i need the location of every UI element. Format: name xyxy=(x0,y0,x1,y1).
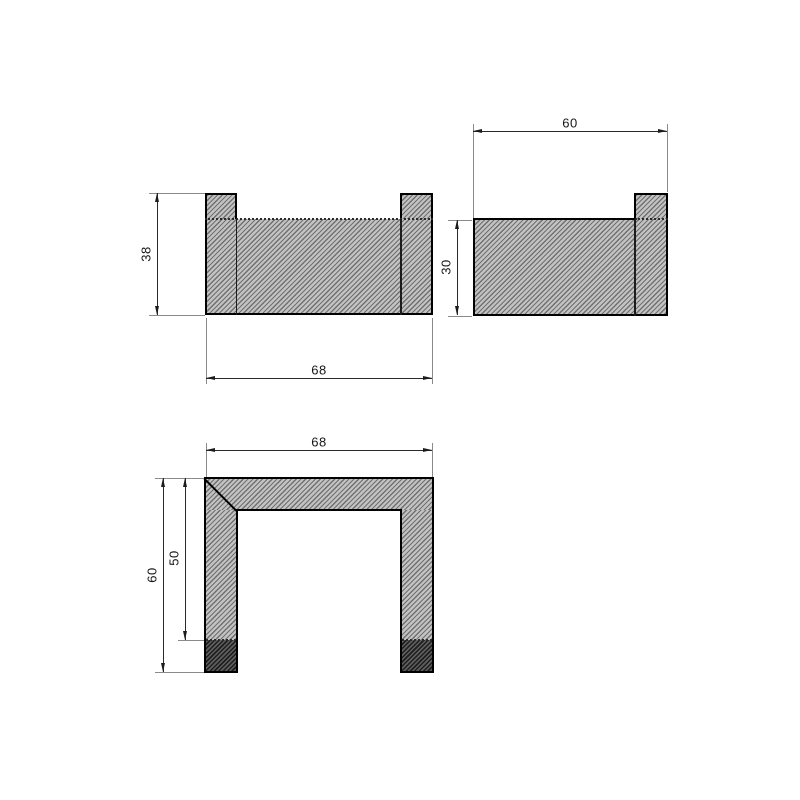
arrow-up-icon xyxy=(161,478,165,487)
arrow-left-icon xyxy=(206,448,215,452)
dimension-line xyxy=(157,193,158,315)
dimension-line xyxy=(457,220,458,315)
top-view-right-leg-section xyxy=(401,510,433,640)
extension-line xyxy=(432,318,433,384)
arrow-up-icon xyxy=(455,220,459,229)
top-view-inner-edge-left xyxy=(236,510,238,672)
extension-line xyxy=(667,124,668,192)
dimension-line xyxy=(206,378,432,379)
dim-label-side-width: 60 xyxy=(562,116,577,131)
dim-label-top-width: 68 xyxy=(311,435,326,450)
dimension-line xyxy=(163,478,164,672)
front-view-left-ear-section xyxy=(205,193,237,219)
top-view-inner-edge-top xyxy=(236,509,402,511)
top-view-outer-edge-right xyxy=(432,477,434,673)
top-view-left-leg-end-section xyxy=(205,640,237,672)
side-view-body-section xyxy=(473,219,668,316)
arrow-right-icon xyxy=(423,376,432,380)
dim-label-front-height: 38 xyxy=(139,246,154,261)
dimension-line xyxy=(206,450,432,451)
top-view-right-leg-bottom-edge xyxy=(400,671,434,673)
dim-label-top-outer-depth: 60 xyxy=(145,567,160,582)
arrow-down-icon xyxy=(155,306,159,315)
extension-line xyxy=(473,124,474,218)
front-view-hidden-top-line xyxy=(205,218,433,220)
top-view-left-leg-bottom-edge xyxy=(204,671,238,673)
front-view-right-ear-section xyxy=(400,193,433,219)
top-view-right-leg-end-boundary xyxy=(402,639,432,641)
drawing-canvas: 38 68 60 30 xyxy=(0,0,800,800)
top-view-top-bar-section xyxy=(205,478,433,510)
dim-label-top-inner-depth: 50 xyxy=(167,550,182,565)
side-view-top-edge xyxy=(473,218,635,220)
arrow-left-icon xyxy=(473,129,482,133)
side-view-tab-section xyxy=(634,193,668,219)
arrow-down-icon xyxy=(161,663,165,672)
side-view-tab-projection-line xyxy=(634,219,636,316)
front-view-body-section xyxy=(205,219,433,315)
top-view-outer-edge-top xyxy=(204,477,434,479)
arrow-right-icon xyxy=(658,129,667,133)
extension-line xyxy=(448,220,472,221)
dim-label-front-width: 68 xyxy=(311,363,326,378)
front-view-left-ear-projection-line xyxy=(236,219,238,315)
top-view-inner-edge-right xyxy=(400,510,402,672)
front-view-right-ear-projection-line xyxy=(400,219,402,315)
arrow-right-icon xyxy=(423,448,432,452)
dim-label-side-height: 30 xyxy=(439,259,454,274)
dimension-line xyxy=(473,131,667,132)
top-view-outer-edge-left xyxy=(204,477,206,673)
arrow-left-icon xyxy=(206,376,215,380)
extension-line xyxy=(448,316,472,317)
top-view-right-leg-end-section xyxy=(401,640,433,672)
dimension-line xyxy=(185,478,186,640)
side-view-hidden-line-under-tab xyxy=(635,218,668,220)
top-view-left-leg-section xyxy=(205,510,237,640)
arrow-up-icon xyxy=(155,193,159,202)
arrow-down-icon xyxy=(183,631,187,640)
arrow-down-icon xyxy=(455,306,459,315)
top-view-left-leg-end-boundary xyxy=(206,639,236,641)
arrow-up-icon xyxy=(183,478,187,487)
extension-line xyxy=(206,318,207,384)
